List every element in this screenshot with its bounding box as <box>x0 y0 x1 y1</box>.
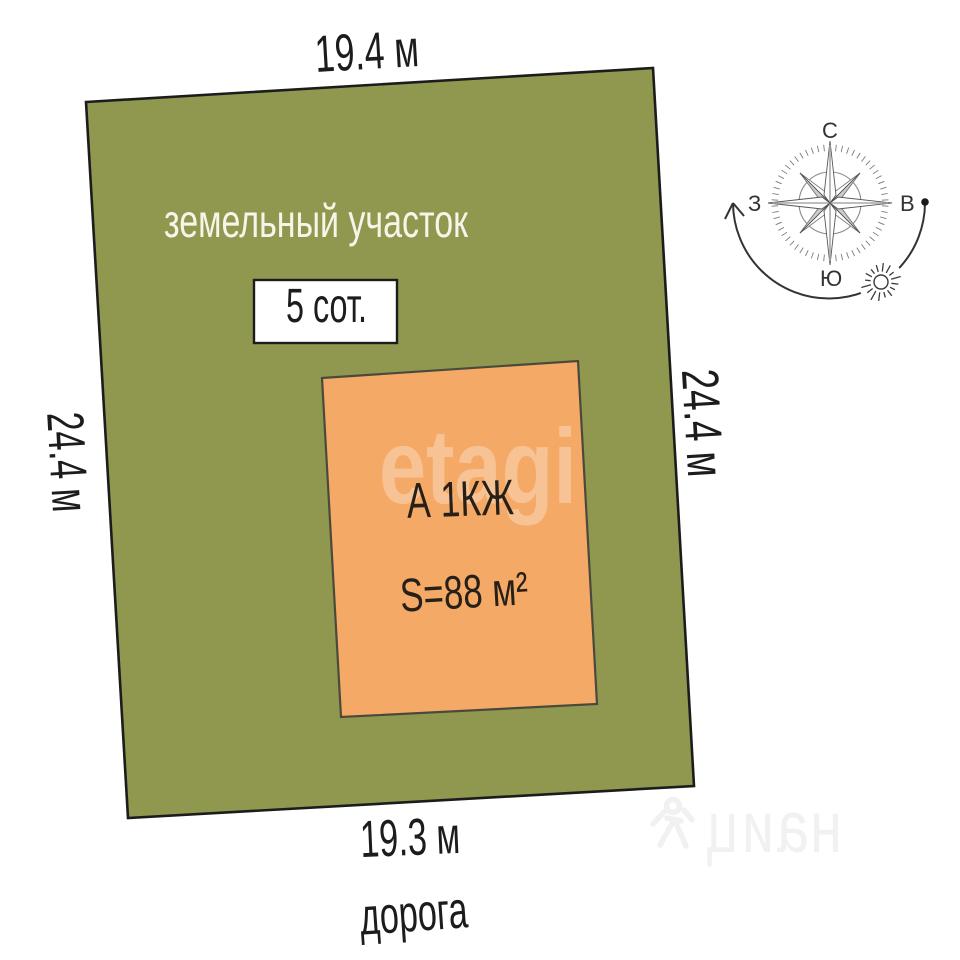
svg-text:а: а <box>776 788 809 868</box>
svg-text:дорога: дорога <box>358 881 470 946</box>
svg-text:ц: ц <box>706 788 738 868</box>
svg-text:24.4 м: 24.4 м <box>35 410 99 513</box>
svg-text:19.4 м: 19.4 м <box>313 20 420 84</box>
svg-text:З: З <box>748 191 761 216</box>
svg-text:24.4 м: 24.4 м <box>670 367 734 478</box>
svg-text:S=88 м²: S=88 м² <box>398 561 529 621</box>
svg-text:5 сот.: 5 сот. <box>286 280 367 333</box>
svg-text:А 1КЖ: А 1КЖ <box>406 469 515 529</box>
svg-text:земельный участок: земельный участок <box>164 195 469 247</box>
svg-text:н: н <box>810 788 842 868</box>
svg-text:и: и <box>742 788 774 868</box>
svg-text:Ю: Ю <box>820 266 842 291</box>
svg-text:С: С <box>822 118 838 143</box>
svg-text:В: В <box>900 191 915 216</box>
svg-text:19.3 м: 19.3 м <box>359 807 461 869</box>
